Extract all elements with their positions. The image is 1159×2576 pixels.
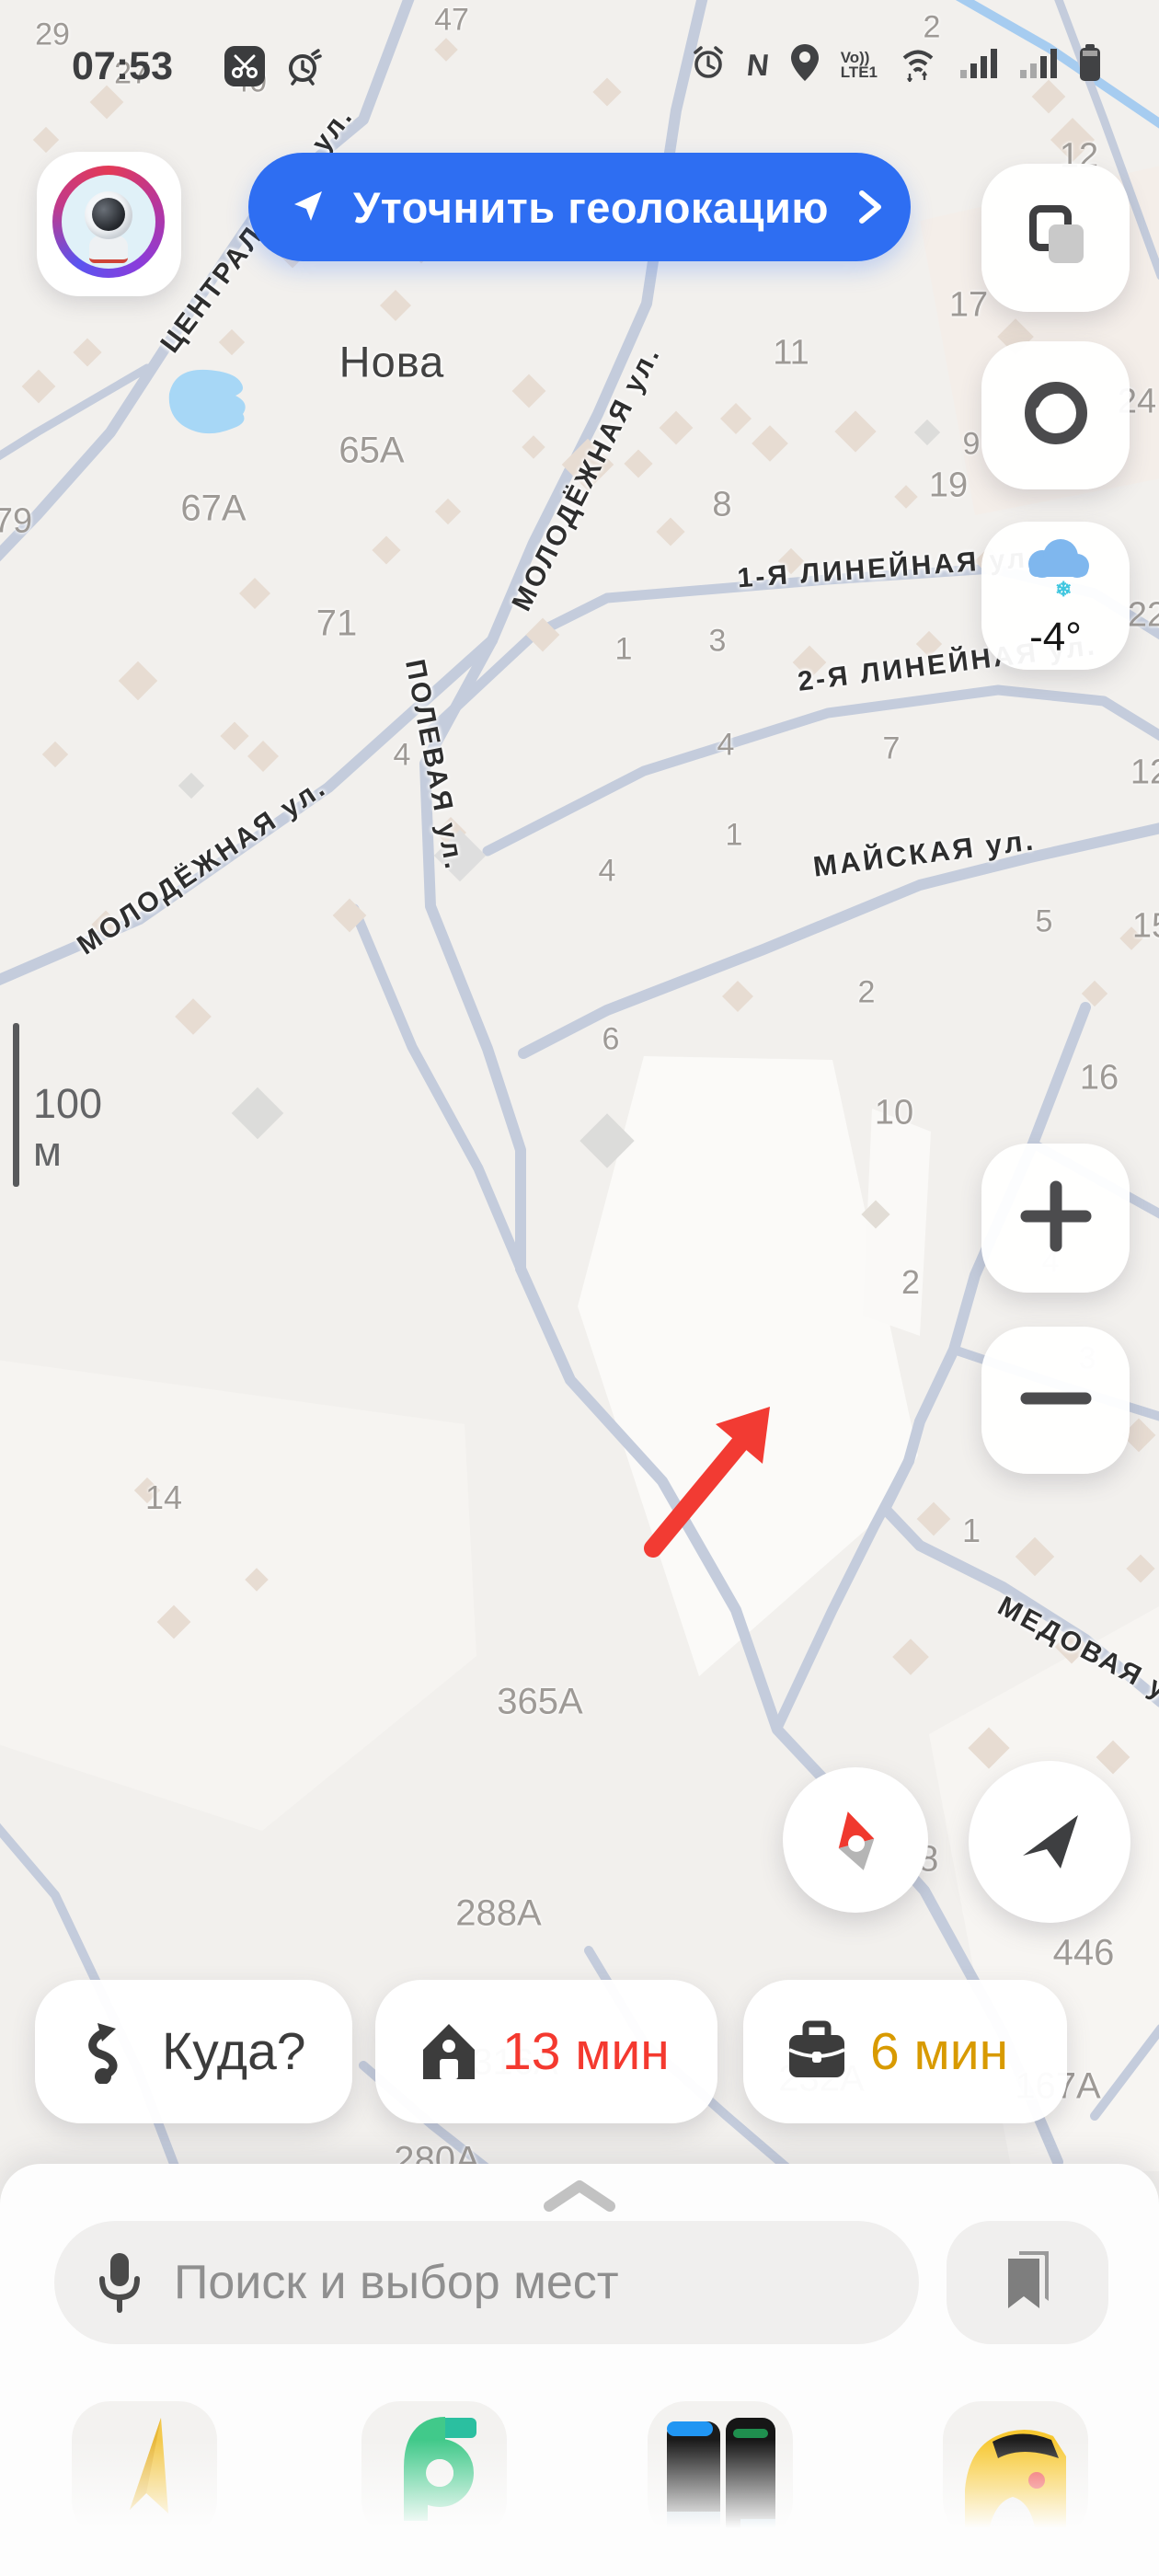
house-marker — [22, 370, 56, 404]
house-marker — [512, 374, 546, 408]
house-marker — [372, 535, 400, 564]
taxi-app-icon[interactable] — [943, 2401, 1088, 2539]
chevron-right-icon — [855, 186, 886, 228]
house-marker — [380, 290, 411, 321]
sheet-handle-chevron-icon[interactable] — [540, 2177, 619, 2218]
scissors-app-icon — [224, 45, 266, 92]
road-events-button[interactable] — [981, 341, 1130, 489]
house-marker — [219, 329, 245, 355]
navigator-app-icon[interactable] — [72, 2401, 217, 2539]
house-marker — [42, 742, 68, 767]
wifi-icon — [897, 43, 939, 86]
layers-button[interactable] — [981, 164, 1130, 312]
house-marker — [894, 485, 917, 508]
road — [488, 690, 1159, 851]
house-marker — [916, 631, 942, 657]
bottom-sheet[interactable] — [0, 2164, 1159, 2576]
plus-icon — [1019, 1179, 1093, 1258]
home-eta-label: 13 мин — [502, 2021, 670, 2082]
house-marker — [1119, 926, 1142, 949]
alarm-clock-icon — [282, 45, 325, 92]
minus-icon — [1019, 1362, 1093, 1440]
location-pin-icon — [788, 42, 821, 87]
ring-icon — [1012, 369, 1100, 462]
house-marker — [175, 998, 212, 1035]
scale-bar-line — [13, 1023, 19, 1187]
house-marker — [656, 517, 684, 546]
house-marker — [232, 1087, 284, 1140]
bookmark-icon — [1001, 2248, 1054, 2318]
road — [0, 640, 492, 983]
house-marker — [247, 741, 279, 772]
house-marker — [239, 578, 270, 609]
house-marker — [119, 661, 157, 700]
pond — [169, 370, 246, 433]
house-marker — [178, 773, 204, 799]
weather-temperature: -4° — [981, 615, 1130, 661]
gesture-navigation-bar[interactable] — [416, 2532, 743, 2547]
search-field[interactable] — [54, 2221, 919, 2344]
my-location-arrow-icon — [1010, 1800, 1089, 1884]
transport-app-icon[interactable] — [648, 2401, 793, 2539]
profile-avatar-button[interactable] — [37, 152, 181, 296]
where-to-label: Куда? — [162, 2021, 305, 2082]
status-bar: 07:53 N — [0, 0, 1159, 101]
road — [885, 1461, 1159, 1702]
route-icon — [77, 2019, 142, 2084]
layers-icon — [1015, 194, 1097, 282]
route-work-button[interactable]: 6 мин — [743, 1980, 1067, 2123]
house-marker — [917, 1502, 951, 1536]
route-home-button[interactable]: 13 мин — [375, 1980, 717, 2123]
house-marker — [722, 981, 753, 1012]
field-polygon — [578, 1056, 918, 1676]
status-time: 07:53 — [72, 44, 173, 89]
astronaut-body — [89, 236, 128, 263]
microphone-icon[interactable] — [95, 2249, 144, 2316]
house-marker — [33, 127, 59, 153]
compass-button[interactable] — [783, 1767, 928, 1913]
house-marker — [778, 548, 804, 574]
house-marker — [660, 411, 694, 445]
house-marker — [1126, 1554, 1154, 1582]
compass-needle-icon — [812, 1797, 898, 1882]
svg-text:❄: ❄ — [1055, 578, 1072, 597]
house-marker — [1016, 1537, 1054, 1576]
house-marker — [752, 425, 788, 462]
discounts-app-icon[interactable] — [361, 2401, 507, 2539]
signal-icon — [958, 44, 999, 86]
house-marker — [793, 646, 827, 680]
house-marker — [220, 721, 248, 750]
map-scale-bar: 100 м — [13, 1023, 19, 1187]
bookmarks-button[interactable] — [947, 2221, 1108, 2344]
house-marker — [834, 410, 876, 452]
house-marker — [435, 499, 461, 524]
zoom-out-button[interactable] — [981, 1327, 1130, 1474]
house-marker — [892, 1639, 929, 1675]
house-marker — [720, 403, 752, 434]
astronaut-visor — [92, 198, 125, 231]
signal-icon — [1018, 44, 1059, 86]
refine-geolocation-label: Уточнить геолокацию — [353, 182, 829, 233]
zoom-in-button[interactable] — [981, 1144, 1130, 1293]
snow-cloud-icon: ❄ — [1016, 533, 1101, 602]
my-location-button[interactable] — [969, 1761, 1130, 1923]
work-eta-label: 6 мин — [870, 2021, 1008, 2082]
field-polygon — [0, 1360, 476, 1831]
navigate-arrow-icon — [287, 186, 329, 228]
weather-button[interactable]: ❄ -4° — [981, 522, 1130, 670]
road — [425, 640, 521, 1269]
nfc-icon: N — [745, 48, 771, 83]
home-icon — [416, 2018, 482, 2085]
house-marker — [73, 338, 101, 366]
where-to-button[interactable]: Куда? — [35, 1980, 352, 2123]
avatar-story-ring — [52, 166, 165, 278]
scale-bar-label: 100 м — [33, 1080, 102, 1176]
house-marker — [1050, 118, 1095, 162]
road — [523, 828, 1159, 1053]
search-input[interactable] — [172, 2254, 820, 2311]
refine-geolocation-button[interactable]: Уточнить геолокацию — [248, 153, 911, 261]
house-marker — [624, 449, 652, 477]
alarm-icon — [689, 43, 728, 86]
house-marker — [914, 420, 940, 445]
battery-icon — [1078, 42, 1102, 87]
house-marker — [522, 435, 545, 458]
briefcase-icon — [784, 2018, 850, 2085]
avatar — [62, 175, 155, 269]
volte-icon: Vo))LTE1 — [841, 51, 878, 80]
